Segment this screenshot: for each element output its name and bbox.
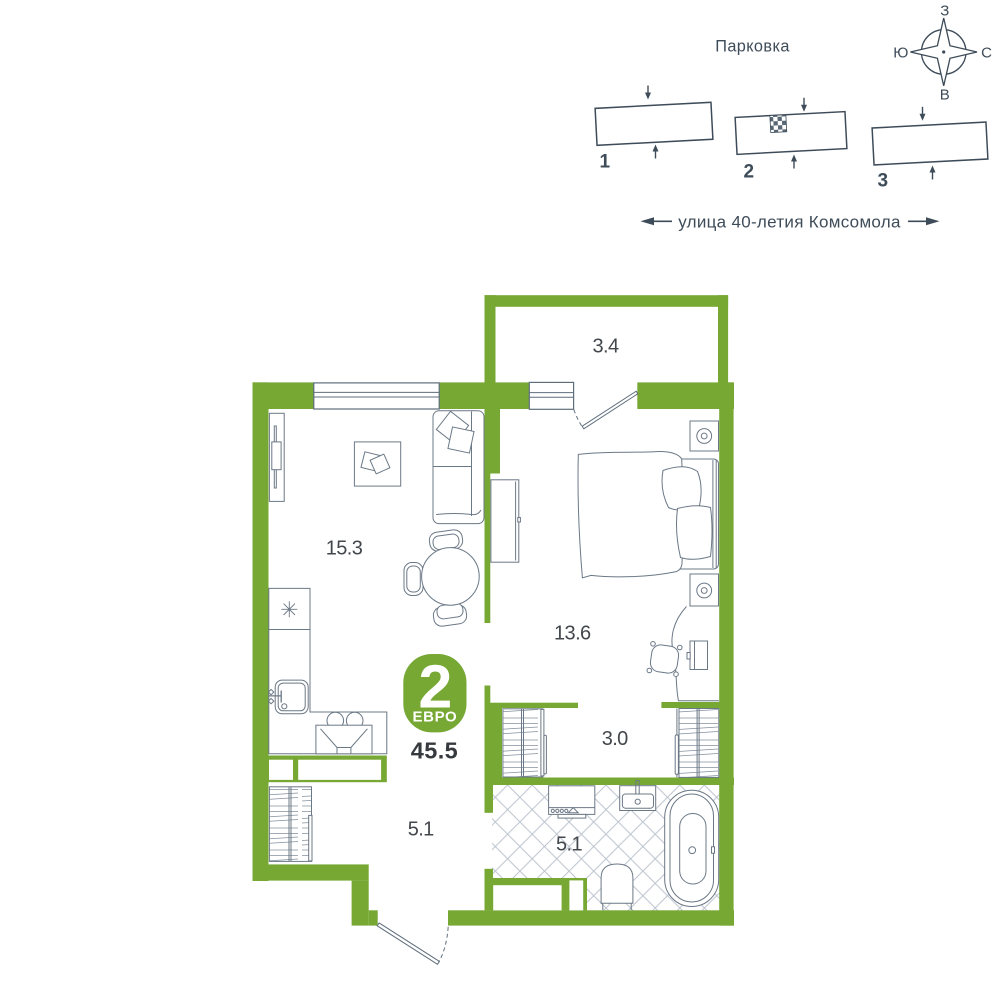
svg-text:13.6: 13.6: [554, 622, 591, 644]
svg-text:45.5: 45.5: [411, 737, 458, 763]
svg-text:Парковка: Парковка: [715, 38, 790, 56]
svg-text:3: 3: [878, 171, 889, 192]
svg-text:1: 1: [600, 152, 611, 173]
svg-text:3.0: 3.0: [602, 728, 628, 750]
svg-text:5.1: 5.1: [408, 819, 434, 841]
svg-text:3.4: 3.4: [592, 335, 618, 357]
svg-text:5.1: 5.1: [556, 834, 582, 856]
svg-text:С: С: [981, 45, 992, 62]
svg-text:улица 40-летия Комсомола: улица 40-летия Комсомола: [678, 212, 901, 231]
svg-text:З: З: [940, 3, 949, 20]
svg-text:ЕВРО: ЕВРО: [413, 709, 458, 726]
svg-text:2: 2: [744, 162, 755, 183]
svg-text:15.3: 15.3: [326, 537, 363, 559]
svg-text:Ю: Ю: [893, 45, 908, 62]
svg-text:В: В: [940, 87, 950, 104]
